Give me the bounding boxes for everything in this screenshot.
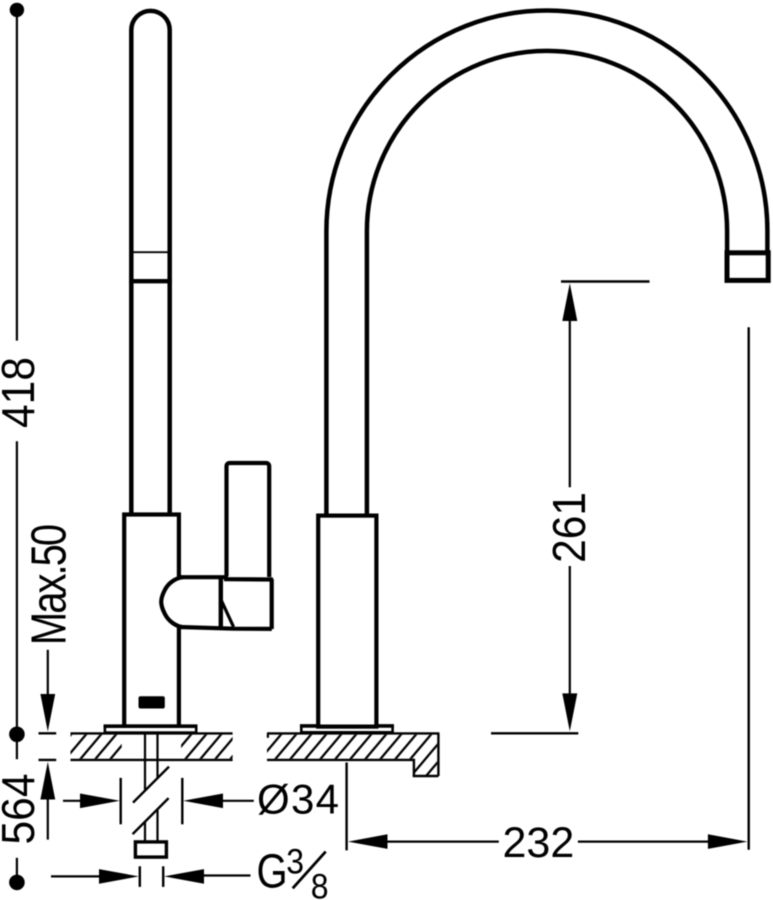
svg-text:232: 232 [503,819,575,867]
svg-text:Max.50: Max.50 [23,525,77,645]
svg-text:418: 418 [0,357,44,428]
svg-text:564: 564 [0,774,44,845]
svg-text:261: 261 [544,492,595,563]
svg-text:8: 8 [311,868,329,900]
svg-text:Ø34: Ø34 [257,775,340,822]
svg-text:G: G [257,845,288,898]
svg-text:3: 3 [286,843,304,882]
